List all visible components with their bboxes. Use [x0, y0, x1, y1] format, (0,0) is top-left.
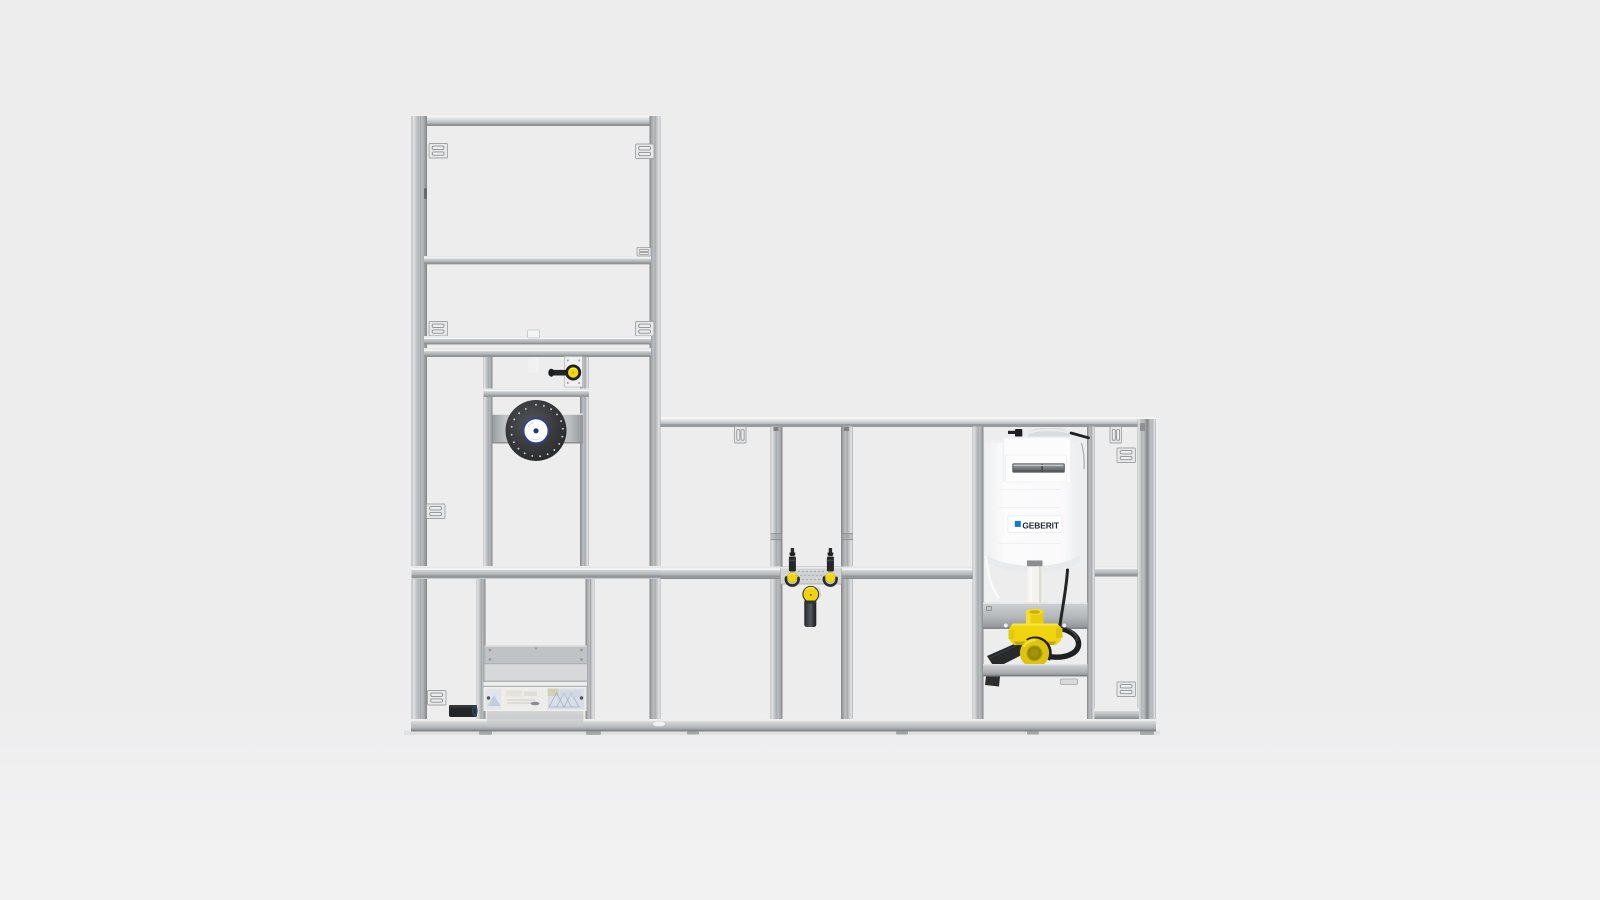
- svg-text:GEBERIT: GEBERIT: [1022, 520, 1060, 530]
